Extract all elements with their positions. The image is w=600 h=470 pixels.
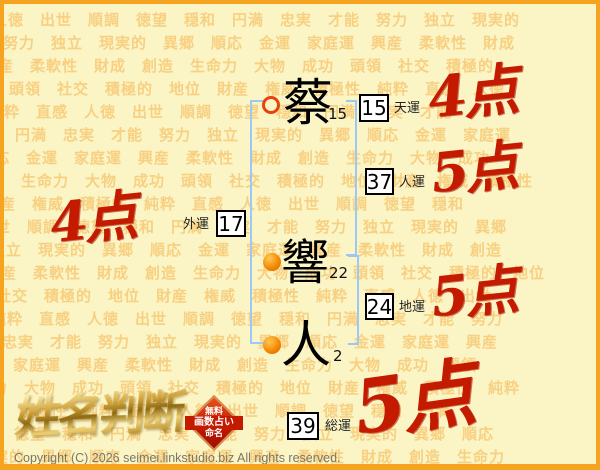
jinun-score: 5点 bbox=[428, 138, 517, 200]
free-kazu-uranai-badge: 無料 画数占い 命名 bbox=[187, 396, 241, 450]
chiun-value-box: 24 bbox=[365, 293, 394, 320]
copyright-text: Copyright (C) 2026 seimei.linkstudio.biz… bbox=[14, 451, 341, 465]
chiun-value: 24 bbox=[367, 295, 392, 319]
site-logo-title: 姓名判断 bbox=[14, 387, 187, 442]
tenun-label: 天運 bbox=[394, 102, 420, 115]
background-row: 人徳 出世 順調 徳望 穏和 円満 忠実 才能 努力 独立 現実的 bbox=[4, 9, 520, 30]
background-row: 家庭運 興産 柔軟性 財成 創造 生命力 大物 成功 頭領 社交 積極的 bbox=[4, 55, 494, 76]
tenun-value: 15 bbox=[361, 96, 386, 120]
given1-marker-dot bbox=[263, 253, 281, 271]
given2-marker-dot bbox=[263, 336, 281, 354]
badge-line-2: 画数占い bbox=[194, 417, 234, 429]
given-char-2-stroke-count: 2 bbox=[333, 349, 343, 364]
seimei-result-page: 人徳 出世 順調 徳望 穏和 円満 忠実 才能 努力 独立 現実的才能 努力 独… bbox=[0, 0, 600, 470]
surname-stroke-count: 15 bbox=[328, 107, 347, 122]
chiun-bracket bbox=[348, 255, 359, 345]
surname-char: 蔡 bbox=[283, 78, 333, 128]
given-char-2: 人 bbox=[281, 320, 331, 370]
souun-value: 39 bbox=[290, 414, 315, 438]
surname-marker-ring bbox=[262, 96, 280, 114]
gaiun-value: 17 bbox=[218, 212, 243, 236]
badge-line-3: 命名 bbox=[205, 429, 223, 439]
given-char-1-stroke-count: 22 bbox=[329, 266, 348, 281]
site-logo[interactable]: 姓名判断 bbox=[16, 390, 184, 440]
background-row: 才能 努力 独立 現実的 異郷 順応 金運 家庭運 興産 柔軟性 財成 bbox=[4, 32, 515, 53]
tenun-value-box: 15 bbox=[359, 94, 389, 122]
badge-line-1: 無料 bbox=[205, 407, 223, 417]
jinun-value: 37 bbox=[367, 170, 392, 194]
gaiun-label: 外運 bbox=[183, 218, 209, 231]
gaiun-bracket bbox=[250, 100, 265, 344]
chiun-label: 地運 bbox=[399, 301, 425, 314]
given-char-1: 響 bbox=[281, 239, 329, 287]
souun-label: 総運 bbox=[325, 420, 351, 433]
jinun-label: 人運 bbox=[399, 176, 425, 189]
souun-value-box: 39 bbox=[287, 412, 319, 440]
gaiun-score: 4点 bbox=[47, 188, 136, 250]
chiun-score: 5点 bbox=[428, 262, 517, 324]
gaiun-value-box: 17 bbox=[216, 210, 246, 237]
souun-score: 5点 bbox=[349, 356, 476, 446]
tenun-score: 4点 bbox=[425, 62, 517, 127]
jinun-bracket bbox=[346, 100, 357, 256]
background-row: 異郷 順応 金運 家庭運 興産 柔軟性 財成 創造 生命力 大物 成功 bbox=[4, 147, 490, 168]
jinun-value-box: 37 bbox=[365, 168, 394, 195]
